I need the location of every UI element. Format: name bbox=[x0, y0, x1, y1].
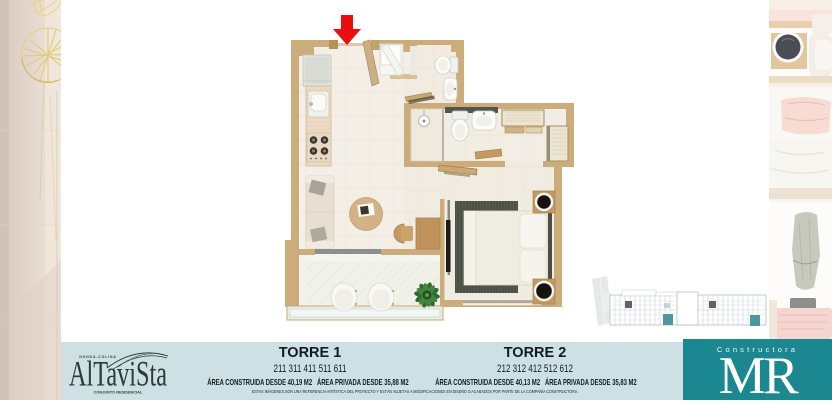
svg-text:AlTaviSta: AlTaviSta bbox=[69, 354, 167, 394]
svg-text:CONJUNTO RESIDENCIAL: CONJUNTO RESIDENCIAL bbox=[94, 390, 143, 394]
